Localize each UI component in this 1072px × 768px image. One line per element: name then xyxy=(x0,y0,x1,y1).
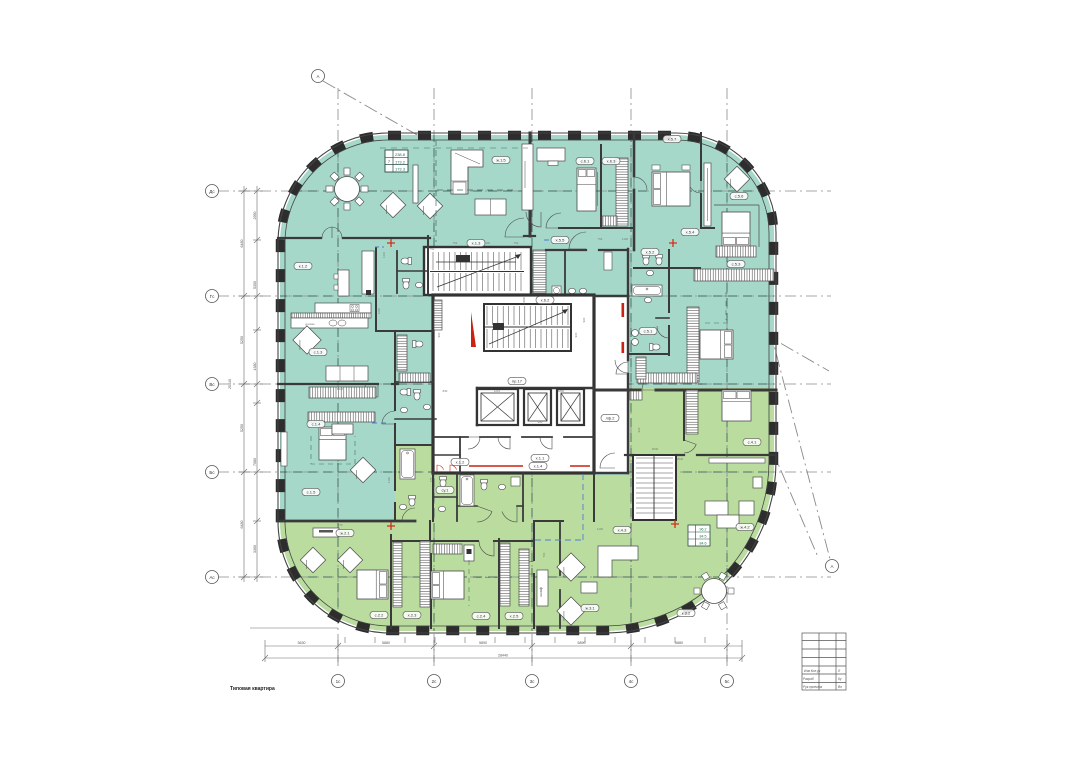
svg-text:с.6.1: с.6.1 xyxy=(581,159,590,164)
svg-text:х.4.3: х.4.3 xyxy=(618,528,627,533)
svg-text:1100: 1100 xyxy=(622,237,628,241)
svg-text:с.5.3: с.5.3 xyxy=(732,262,741,267)
svg-text:Вл: Вл xyxy=(838,685,842,689)
svg-text:6480: 6480 xyxy=(240,521,244,529)
svg-text:х.5.5: х.5.5 xyxy=(556,238,565,243)
svg-text:1100: 1100 xyxy=(387,477,391,483)
svg-text:1215: 1215 xyxy=(494,389,501,393)
svg-text:1220: 1220 xyxy=(377,307,381,314)
svg-text:870: 870 xyxy=(338,523,343,527)
svg-text:с.2.4: с.2.4 xyxy=(477,614,486,619)
svg-text:х.6.2: х.6.2 xyxy=(541,298,550,303)
svg-text:лф.2: лф.2 xyxy=(606,416,616,421)
svg-text:173.2: 173.2 xyxy=(395,159,406,164)
svg-text:2с: 2с xyxy=(432,679,438,684)
svg-text:760: 760 xyxy=(542,552,546,557)
svg-text:96.2: 96.2 xyxy=(700,528,707,532)
svg-text:1860: 1860 xyxy=(558,389,565,393)
svg-text:5880: 5880 xyxy=(675,641,683,645)
svg-text:2540: 2540 xyxy=(677,457,684,461)
svg-text:с.1.3: с.1.3 xyxy=(314,350,323,355)
svg-text:5890: 5890 xyxy=(479,641,487,645)
svg-text:900: 900 xyxy=(538,420,543,424)
svg-text:960: 960 xyxy=(437,332,441,337)
svg-text:7080: 7080 xyxy=(253,458,257,466)
svg-text:6480: 6480 xyxy=(240,240,244,248)
svg-text:13860: 13860 xyxy=(522,296,526,304)
svg-text:Рук.проекта: Рук.проекта xyxy=(803,685,822,689)
svg-text:84.6: 84.6 xyxy=(700,542,707,546)
svg-text:х.6.3: х.6.3 xyxy=(607,159,616,164)
svg-text:3с: 3с xyxy=(530,679,536,684)
svg-text:3360: 3360 xyxy=(253,545,257,553)
svg-text:752: 752 xyxy=(514,241,519,245)
svg-text:5с: 5с xyxy=(725,679,731,684)
svg-text:3630: 3630 xyxy=(298,641,306,645)
svg-text:х.2.5: х.2.5 xyxy=(510,614,519,619)
svg-text:2540: 2540 xyxy=(652,447,659,451)
svg-text:A: A xyxy=(830,564,833,569)
svg-text:с.4.1: с.4.1 xyxy=(748,440,757,445)
svg-text:ж.3.1: ж.3.1 xyxy=(585,606,595,611)
svg-text:Ку: Ку xyxy=(838,677,842,681)
svg-text:25440: 25440 xyxy=(228,379,232,389)
svg-text:770: 770 xyxy=(429,477,433,482)
svg-text:Разраб: Разраб xyxy=(803,677,814,681)
svg-text:28440: 28440 xyxy=(498,654,508,658)
svg-text:с.5.6: с.5.6 xyxy=(735,194,744,199)
svg-text:Бс: Бс xyxy=(209,470,215,475)
svg-text:х.1.1: х.1.1 xyxy=(536,456,545,461)
svg-text:8940: 8940 xyxy=(337,387,344,391)
svg-text:5250: 5250 xyxy=(240,336,244,344)
svg-text:173.3: 173.3 xyxy=(395,167,406,172)
svg-text:238.8: 238.8 xyxy=(395,152,406,157)
svg-text:х.1.2: х.1.2 xyxy=(456,460,465,465)
svg-text:ж.1.5: ж.1.5 xyxy=(496,158,506,163)
svg-text:Ас: Ас xyxy=(209,575,215,580)
svg-text:4380: 4380 xyxy=(253,363,257,371)
svg-text:1100: 1100 xyxy=(597,527,603,531)
svg-text:с.2.2: с.2.2 xyxy=(375,613,384,618)
svg-text:4с: 4с xyxy=(629,679,635,684)
svg-text:5890: 5890 xyxy=(578,641,586,645)
svg-text:A: A xyxy=(316,74,319,79)
svg-text:су.1: су.1 xyxy=(442,488,450,493)
svg-text:х.5.2: х.5.2 xyxy=(646,250,655,255)
svg-text:752: 752 xyxy=(598,237,603,241)
svg-text:2950: 2950 xyxy=(253,212,257,220)
svg-text:к.3.2: к.3.2 xyxy=(682,611,691,616)
svg-text:5350: 5350 xyxy=(253,281,257,289)
svg-text:960: 960 xyxy=(582,317,586,322)
svg-text:1100: 1100 xyxy=(484,241,490,245)
svg-text:х.1.4: х.1.4 xyxy=(534,464,543,469)
svg-text:920: 920 xyxy=(637,427,641,432)
svg-text:с.1.4: с.1.4 xyxy=(312,422,321,427)
svg-text:шкаф: шкаф xyxy=(539,587,543,596)
svg-text:х.5.7: х.5.7 xyxy=(668,137,677,142)
svg-text:х.5.4: х.5.4 xyxy=(686,230,695,235)
svg-text:Типовая квартира: Типовая квартира xyxy=(230,686,275,692)
svg-text:Изм Кол.уч: Изм Кол.уч xyxy=(804,669,821,673)
svg-text:5250: 5250 xyxy=(240,424,244,432)
svg-text:752: 752 xyxy=(453,241,458,245)
svg-text:с.5.1: с.5.1 xyxy=(644,329,653,334)
svg-text:к.1.2: к.1.2 xyxy=(299,264,308,269)
svg-text:960: 960 xyxy=(574,332,578,337)
svg-text:с.1.5: с.1.5 xyxy=(307,490,316,495)
svg-text:5880: 5880 xyxy=(382,641,390,645)
svg-text:Гс: Гс xyxy=(210,294,215,299)
svg-text:Вс: Вс xyxy=(209,382,215,387)
svg-text:пр.17: пр.17 xyxy=(512,379,523,384)
svg-text:ж.2.1: ж.2.1 xyxy=(340,531,350,536)
svg-text:х.2.3: х.2.3 xyxy=(408,613,417,618)
svg-text:ж.4.2: ж.4.2 xyxy=(740,525,750,530)
svg-text:1с: 1с xyxy=(336,679,342,684)
svg-text:830: 830 xyxy=(443,389,448,393)
svg-text:духовка: духовка xyxy=(305,323,315,326)
svg-text:1310: 1310 xyxy=(382,251,386,258)
svg-text:300: 300 xyxy=(698,382,703,386)
svg-text:х.1.3: х.1.3 xyxy=(472,241,481,246)
svg-text:Дс: Дс xyxy=(209,189,215,194)
svg-text:752: 752 xyxy=(430,247,435,251)
svg-text:84.5: 84.5 xyxy=(700,535,707,539)
